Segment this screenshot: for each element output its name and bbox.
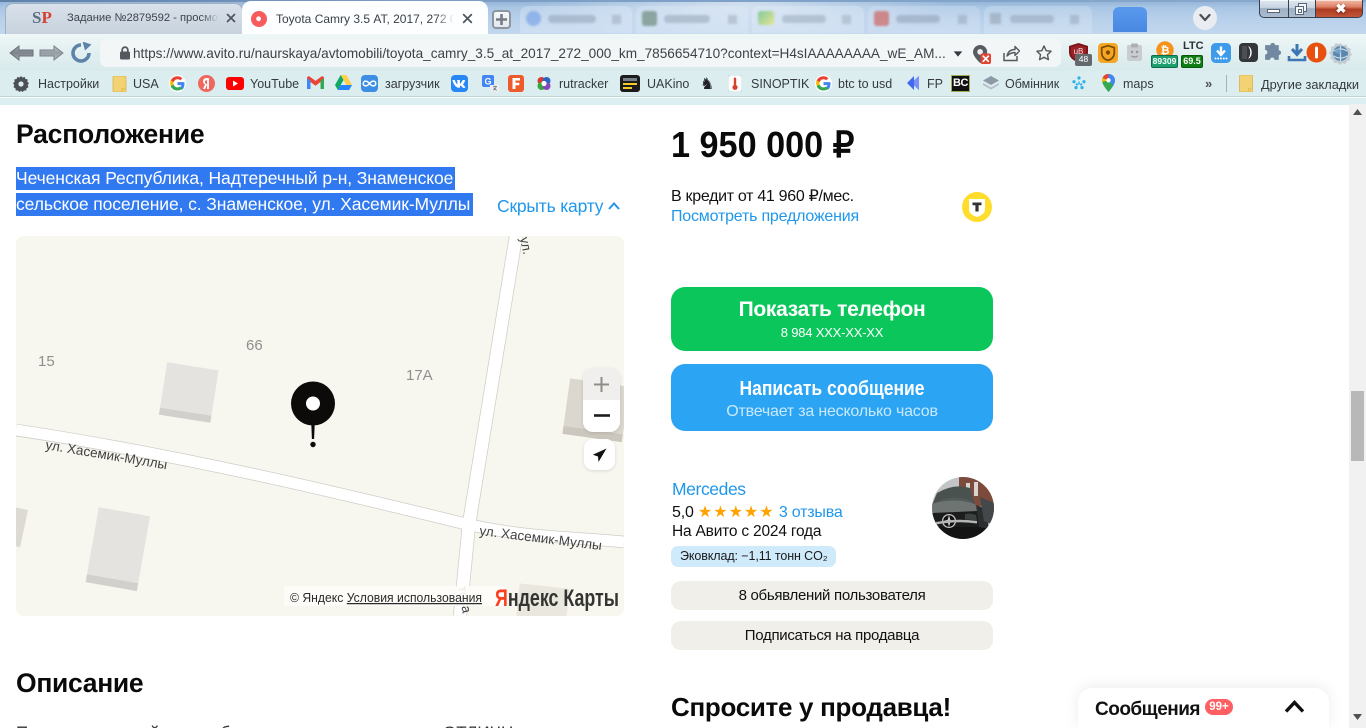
- svg-text:66: 66: [246, 337, 263, 354]
- svg-text:15: 15: [38, 353, 55, 370]
- svg-text:Яндекс Карты: Яндекс Карты: [495, 585, 619, 612]
- svg-text:17А: 17А: [406, 367, 433, 384]
- svg-text:© Яндекс Условия использования: © Яндекс Условия использования: [290, 591, 482, 605]
